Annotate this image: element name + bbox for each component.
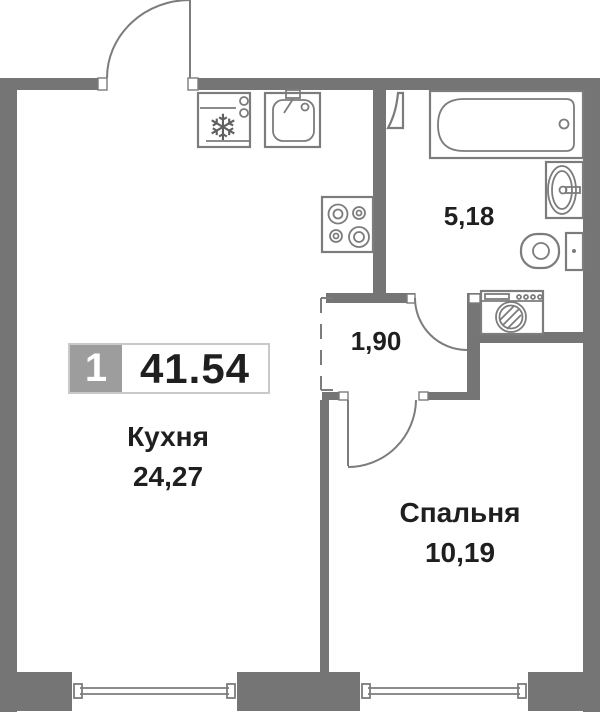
vent-shaft-icon	[388, 93, 403, 128]
bedroom-window	[360, 672, 528, 711]
entrance-door	[98, 0, 198, 90]
door-jamb	[419, 392, 428, 400]
door-jamb	[339, 392, 348, 400]
bedroom-area: 10,19	[360, 539, 560, 567]
unit-total-area: 41.54	[122, 345, 268, 392]
bedroom-door	[339, 392, 428, 467]
washer-outline	[481, 291, 543, 334]
kitchen-window	[72, 672, 237, 711]
door-swing-arc	[348, 400, 416, 467]
kitchen-sink-icon	[265, 90, 320, 147]
toilet-bowl	[521, 234, 559, 268]
bedroom-name: Спальня	[360, 499, 560, 527]
door-jamb	[188, 78, 198, 90]
window-opening	[360, 672, 528, 711]
interior-walls	[320, 90, 584, 672]
floor-plan: ❄	[0, 0, 600, 713]
door-jamb	[407, 294, 415, 303]
wall-kitchen-bedroom	[320, 400, 329, 672]
window-opening	[72, 672, 237, 711]
wall-top-right	[190, 78, 600, 90]
bathroom-area: 5,18	[419, 203, 519, 229]
kitchen-area: 24,27	[68, 463, 268, 491]
bathroom-sink-icon	[546, 162, 583, 218]
bathtub-icon	[430, 91, 583, 158]
fridge-icon: ❄	[198, 93, 250, 149]
toilet-button	[572, 249, 576, 253]
wall-right	[583, 78, 600, 712]
stove-icon	[322, 197, 373, 252]
exterior-walls	[0, 78, 600, 712]
washing-machine-icon	[481, 291, 543, 334]
kitchen-name: Кухня	[68, 423, 268, 451]
door-jamb	[469, 294, 480, 303]
bedroom-label: Спальня 10,19	[360, 499, 560, 567]
toilet-icon	[521, 233, 583, 270]
kitchen-label: Кухня 24,27	[68, 423, 268, 491]
wall-hallway-right	[467, 293, 480, 400]
wall-kitchen-bathroom	[373, 90, 386, 303]
door-swing-arc	[107, 0, 190, 78]
wall-hallway-top	[326, 293, 415, 303]
fridge-snowflake-icon: ❄	[208, 108, 238, 149]
hallway-area: 1,90	[326, 328, 426, 354]
wall-left	[0, 78, 17, 712]
unit-number: 1	[70, 345, 122, 392]
door-jamb	[98, 78, 107, 90]
unit-badge: 1 41.54	[68, 343, 270, 394]
